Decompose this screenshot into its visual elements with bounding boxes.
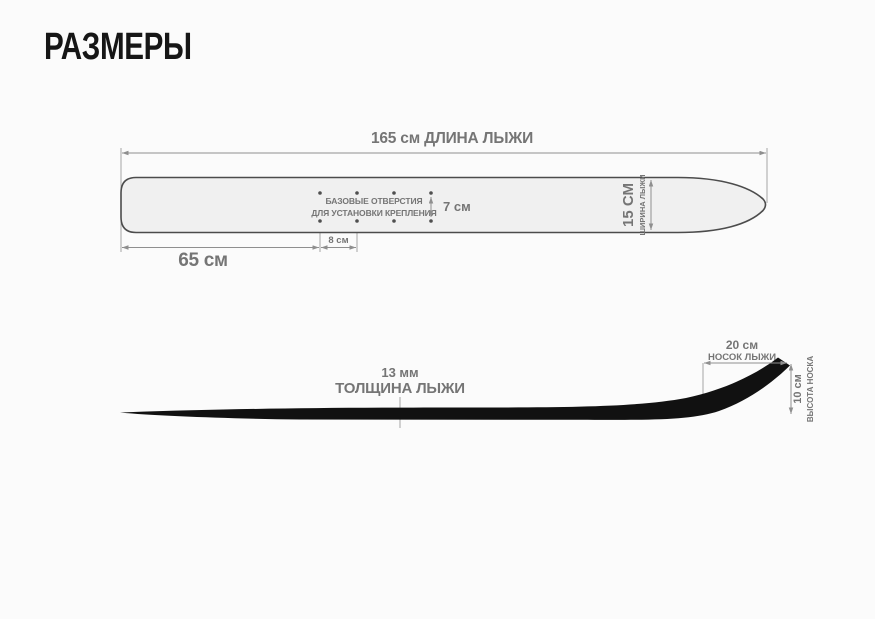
hole-icon [392, 191, 396, 195]
hole-spacing-dimension-label: 8 см [328, 235, 348, 246]
hole-icon [429, 219, 433, 223]
ski-dimensions-diagram: РАЗМЕРЫ 165 см ДЛИНА ЛЫЖИ [0, 0, 875, 619]
hole-icon [355, 219, 359, 223]
width-dimension-value: 15 СМ [620, 183, 637, 227]
tip-length-value: 20 см [726, 338, 758, 352]
hole-icon [392, 219, 396, 223]
side-view-group: 13 мм ТОЛЩИНА ЛЫЖИ 20 см НОСОК ЛЫЖИ 10 с… [120, 338, 815, 428]
width-dimension-label: ШИРИНА ЛЫЖИ [638, 174, 647, 235]
holes-note-line2: ДЛЯ УСТАНОВКИ КРЕПЛЕНИЯ [311, 208, 436, 218]
top-view-group: 165 см ДЛИНА ЛЫЖИ БАЗОВЫЕ ОТВЕРСТИЯ ДЛЯ … [121, 130, 767, 271]
holes-note-line1: БАЗОВЫЕ ОТВЕРСТИЯ [326, 196, 423, 206]
hole-icon [355, 191, 359, 195]
tip-height-label: ВЫСОТА НОСКА [806, 356, 815, 422]
hole-icon [429, 191, 433, 195]
length-dimension-label: 165 см ДЛИНА ЛЫЖИ [371, 130, 533, 147]
tip-height-value: 10 см [792, 374, 804, 404]
hole-icon [318, 219, 322, 223]
thickness-label: ТОЛЩИНА ЛЫЖИ [335, 380, 465, 397]
tail-offset-dimension-label: 65 см [178, 250, 228, 271]
thickness-value: 13 мм [381, 365, 418, 380]
diagram-svg: 165 см ДЛИНА ЛЫЖИ БАЗОВЫЕ ОТВЕРСТИЯ ДЛЯ … [0, 0, 875, 619]
hole-icon [318, 191, 322, 195]
tip-length-label: НОСОК ЛЫЖИ [708, 352, 776, 363]
row-gap-dimension-label: 7 см [443, 199, 471, 214]
